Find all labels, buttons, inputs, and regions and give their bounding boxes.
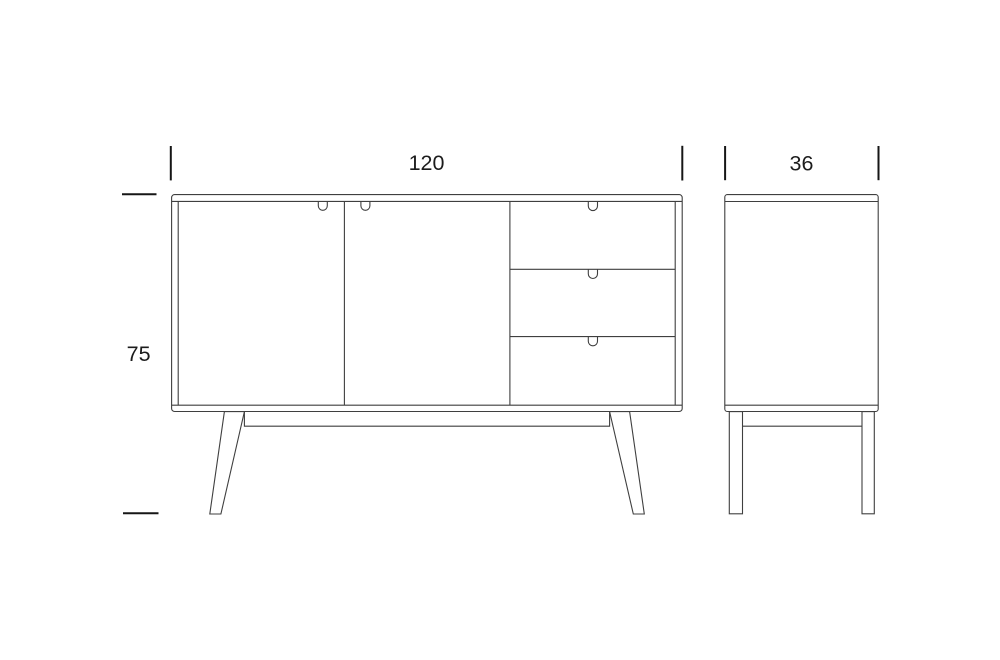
svg-text:36: 36 bbox=[790, 151, 814, 175]
svg-text:120: 120 bbox=[409, 151, 445, 175]
svg-text:75: 75 bbox=[127, 342, 151, 366]
